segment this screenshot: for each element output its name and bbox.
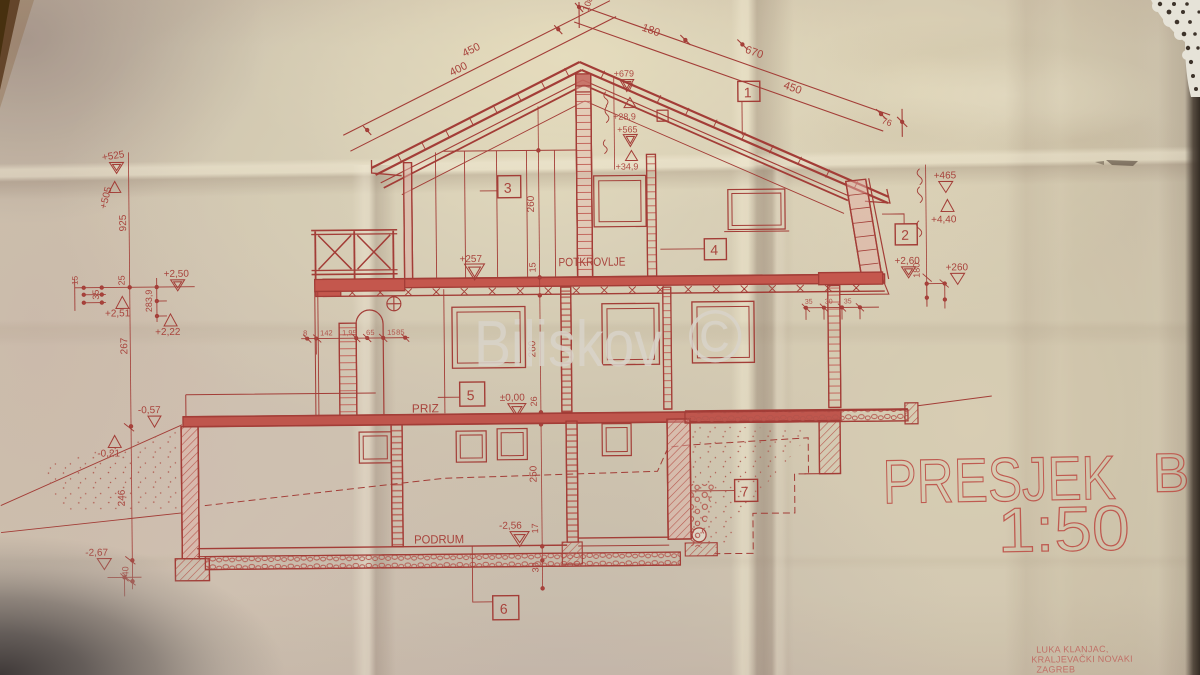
svg-text:85: 85: [396, 328, 404, 337]
svg-text:LUKA KLANJAC,: LUKA KLANJAC,: [1036, 644, 1109, 655]
svg-text:+28,9: +28,9: [613, 111, 636, 121]
svg-text:4: 4: [710, 242, 718, 258]
svg-text:ZAGREB: ZAGREB: [1036, 664, 1075, 674]
svg-text:+679: +679: [614, 68, 634, 78]
svg-text:35: 35: [844, 298, 852, 305]
svg-text:+34,9: +34,9: [616, 161, 639, 171]
svg-text:+260: +260: [946, 262, 969, 273]
svg-text:+565: +565: [617, 124, 637, 134]
svg-text:5: 5: [467, 387, 475, 403]
svg-text:250: 250: [528, 465, 539, 482]
svg-text:+505: +505: [98, 185, 114, 210]
svg-text:25: 25: [117, 275, 127, 285]
svg-text:-2,56: -2,56: [499, 521, 522, 532]
svg-text:142: 142: [320, 328, 333, 337]
svg-text:17: 17: [530, 523, 540, 533]
svg-text:-0,21: -0,21: [97, 448, 120, 459]
svg-text:15: 15: [387, 328, 395, 337]
svg-text:KRALJEVAČKI NOVAKI: KRALJEVAČKI NOVAKI: [1031, 654, 1133, 665]
svg-text:±0,00: ±0,00: [500, 393, 525, 404]
svg-text:+2,51: +2,51: [105, 308, 131, 319]
svg-text:400: 400: [448, 60, 470, 79]
svg-text:180: 180: [912, 263, 922, 278]
svg-text:POTKROVLJE: POTKROVLJE: [558, 255, 625, 270]
svg-text:30: 30: [825, 299, 833, 306]
svg-text:260: 260: [526, 195, 537, 212]
svg-text:76: 76: [880, 116, 893, 129]
svg-text:283,9: 283,9: [144, 290, 154, 313]
svg-text:1:50: 1:50: [997, 493, 1130, 566]
svg-text:8: 8: [303, 329, 307, 338]
svg-text:©: ©: [688, 295, 743, 378]
svg-text:180: 180: [640, 22, 661, 39]
svg-text:35: 35: [805, 299, 813, 306]
svg-text:35: 35: [91, 290, 101, 300]
svg-text:+525: +525: [101, 149, 125, 163]
svg-text:670: 670: [743, 44, 764, 61]
svg-text:-0,57: -0,57: [138, 405, 161, 416]
svg-text:+2,50: +2,50: [164, 269, 190, 280]
svg-text:2: 2: [901, 227, 909, 243]
svg-text:65: 65: [366, 328, 374, 337]
svg-text:PODRUM: PODRUM: [414, 532, 464, 546]
svg-text:1: 1: [744, 84, 752, 100]
svg-text:1,95: 1,95: [342, 328, 357, 337]
svg-text:+4,40: +4,40: [931, 214, 957, 225]
svg-text:B: B: [1152, 441, 1190, 504]
svg-text:450: 450: [782, 80, 803, 97]
svg-text:+2,22: +2,22: [155, 327, 181, 338]
svg-text:925: 925: [118, 214, 129, 231]
svg-text:6: 6: [500, 601, 508, 617]
svg-text:15: 15: [71, 275, 80, 285]
svg-text:267: 267: [119, 337, 130, 354]
svg-text:450: 450: [460, 41, 482, 60]
svg-text:15: 15: [527, 262, 537, 272]
svg-text:246: 246: [117, 489, 128, 506]
svg-text:3: 3: [504, 180, 512, 196]
svg-text:26: 26: [529, 396, 539, 406]
svg-text:7: 7: [741, 483, 749, 499]
svg-text:PRIZ: PRIZ: [412, 401, 439, 415]
svg-text:+465: +465: [934, 170, 957, 181]
svg-text:Biliskov: Biliskov: [474, 307, 662, 380]
